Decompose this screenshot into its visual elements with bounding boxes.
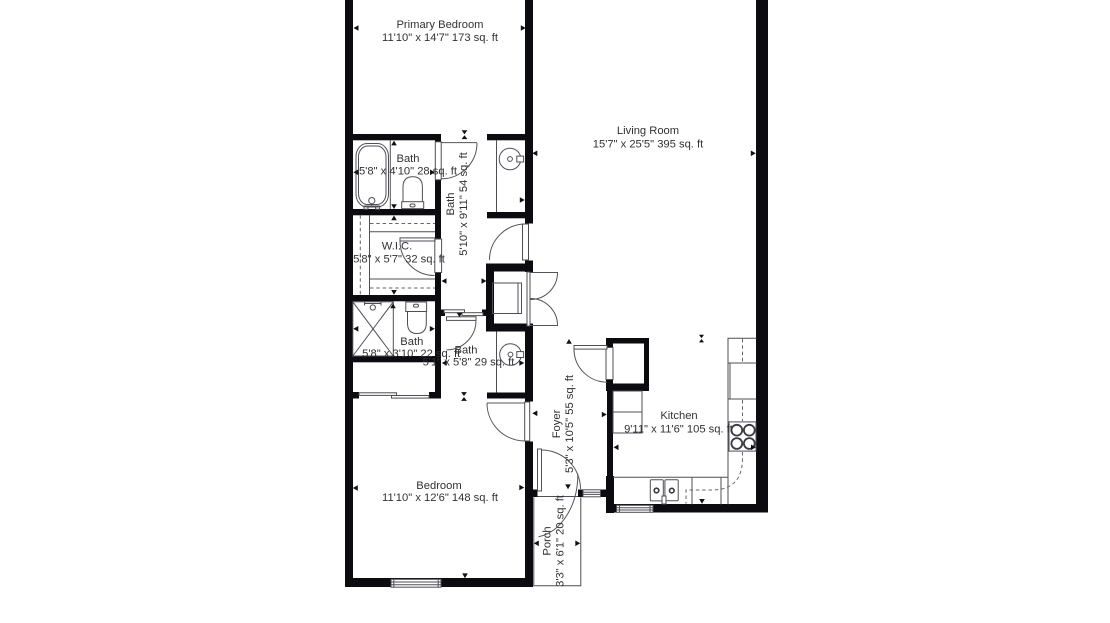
svg-text:W.I.C.: W.I.C.	[382, 241, 412, 253]
svg-text:Kitchen: Kitchen	[660, 410, 697, 422]
svg-text:11'10" x 14'7" 173 sq. ft: 11'10" x 14'7" 173 sq. ft	[382, 32, 499, 44]
svg-text:5'8" x 4'10" 28 sq. ft: 5'8" x 4'10" 28 sq. ft	[359, 166, 458, 178]
svg-text:5'8" x 5'7" 32 sq. ft: 5'8" x 5'7" 32 sq. ft	[353, 254, 446, 266]
svg-text:5'1" x 5'8" 29 sq. ft: 5'1" x 5'8" 29 sq. ft	[423, 357, 516, 369]
svg-text:Bath: Bath	[396, 153, 419, 165]
svg-text:9'11" x 11'6" 105 sq. ft: 9'11" x 11'6" 105 sq. ft	[624, 424, 734, 436]
svg-text:Bath: Bath	[400, 336, 423, 348]
svg-text:Bath: Bath	[454, 345, 477, 357]
svg-text:11'10" x 12'6" 148 sq. ft: 11'10" x 12'6" 148 sq. ft	[382, 492, 499, 504]
svg-text:Primary Bedroom: Primary Bedroom	[396, 19, 483, 31]
svg-text:15'7" x 25'5" 395 sq. ft: 15'7" x 25'5" 395 sq. ft	[593, 139, 704, 151]
svg-text:Bedroom: Bedroom	[416, 480, 461, 492]
svg-text:Living Room: Living Room	[617, 125, 679, 137]
